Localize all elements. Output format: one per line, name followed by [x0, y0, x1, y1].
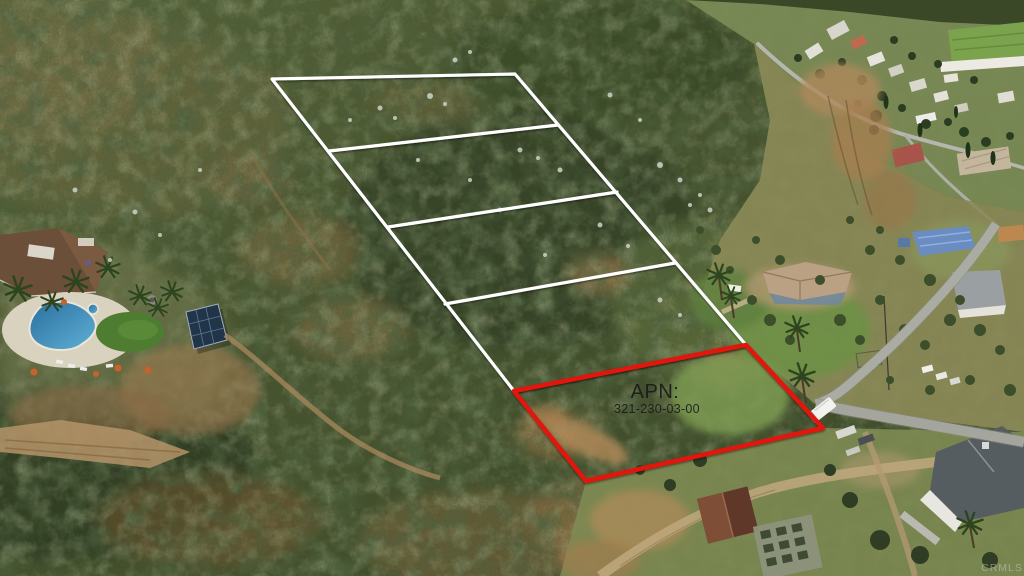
apn-number: 321-230-03-00 — [614, 402, 700, 416]
spa — [88, 304, 98, 314]
crmls-watermark: CRMLS — [981, 562, 1023, 574]
apn-label: APN: — [631, 381, 680, 403]
aerial-photo-canvas: APN: 321-230-03-00 CRMLS — [0, 0, 1024, 576]
aerial-photo: APN: 321-230-03-00 CRMLS — [0, 0, 1024, 576]
